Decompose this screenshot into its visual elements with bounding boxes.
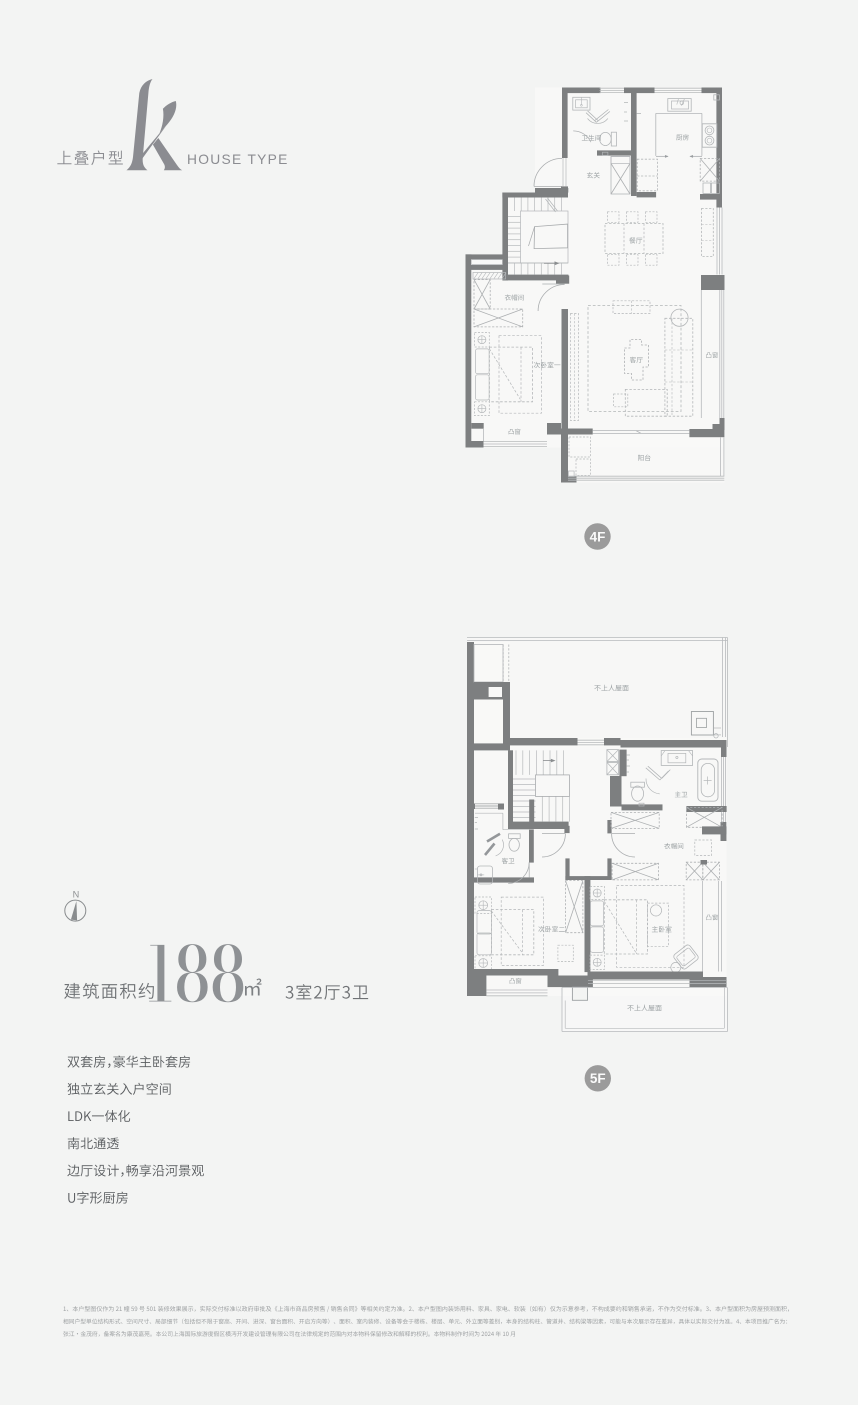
svg-text:HOUSE TYPE: HOUSE TYPE: [187, 152, 289, 167]
svg-text:N: N: [73, 890, 80, 900]
svg-text:5F: 5F: [590, 1071, 606, 1086]
svg-text:4F: 4F: [590, 529, 606, 544]
